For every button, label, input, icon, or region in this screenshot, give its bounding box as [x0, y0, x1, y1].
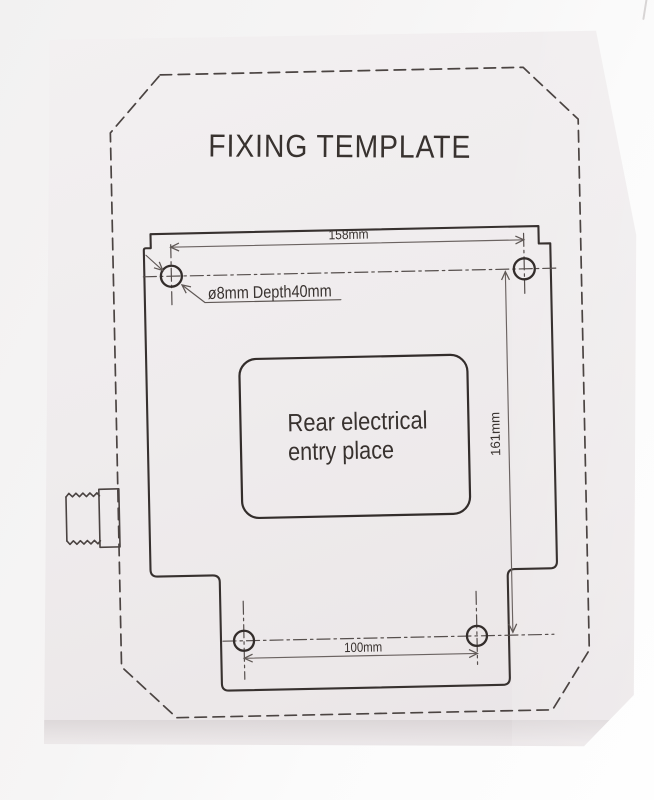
hole-annotation-arrow-upper — [146, 255, 163, 271]
centerline-bottom-horizontal — [223, 634, 554, 641]
rear-entry-label-line1: Rear electrical — [287, 406, 428, 437]
dimension-text-158mm: 158mm — [328, 227, 368, 243]
centerline-top-horizontal — [143, 268, 559, 277]
dimension-line-161mm — [505, 272, 513, 632]
gland-thread-top — [66, 493, 100, 497]
dimension-text-100mm: 100mm — [344, 639, 382, 655]
gland-thread-bottom — [67, 540, 101, 544]
photo-scene: FIXING TEMPLATE Rear electrical entry pl… — [0, 0, 654, 800]
page-title: FIXING TEMPLATE — [208, 127, 471, 164]
rear-entry-label-line2: entry place — [288, 436, 395, 466]
centerline-hole-tr-vertical — [524, 233, 525, 295]
centerline-hole-tl-vertical — [171, 245, 172, 309]
hole-annotation-text: ø8mm Depth40mm — [208, 281, 332, 303]
centerline-hole-bl-vertical — [243, 601, 245, 679]
cable-gland-connector — [66, 489, 120, 548]
gland-thread-end — [66, 497, 67, 541]
fixing-template-drawing: FIXING TEMPLATE Rear electrical entry pl… — [0, 0, 654, 800]
dimension-text-161mm: 161mm — [487, 412, 503, 456]
gland-flange — [99, 489, 120, 547]
